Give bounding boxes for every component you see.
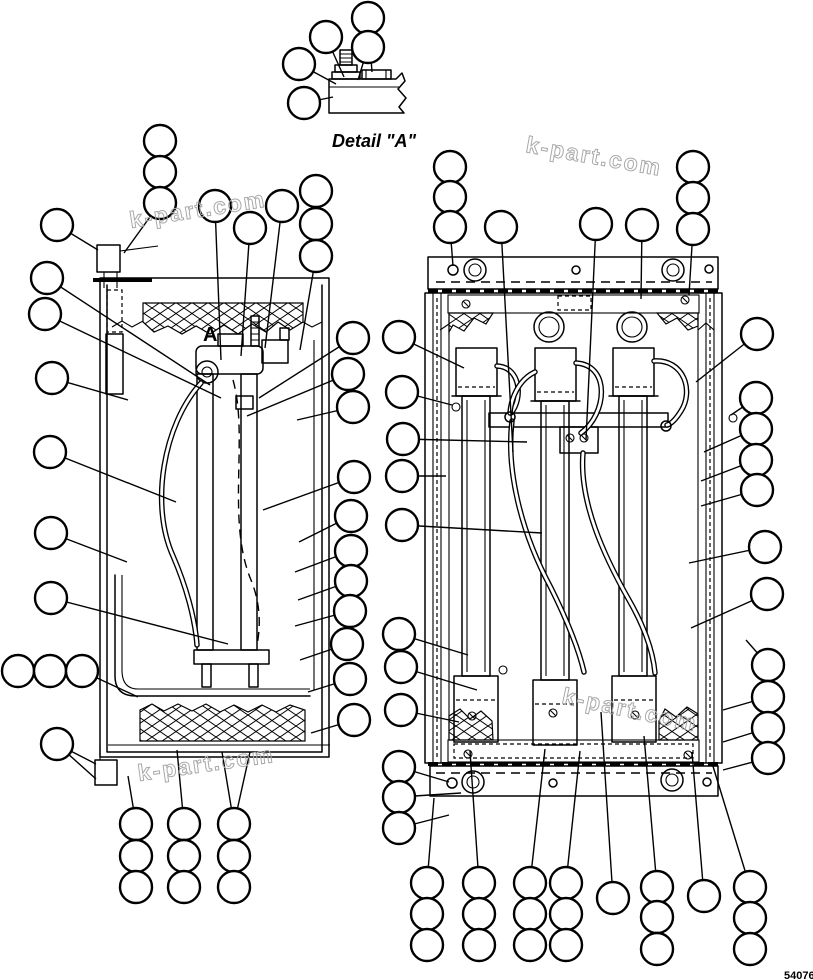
callout-balloon: [168, 840, 200, 872]
callout-balloon: [283, 48, 315, 80]
callout-balloon: [2, 655, 34, 687]
callout-balloon: [734, 933, 766, 965]
callout-balloon: [688, 880, 720, 912]
callout-balloon: [288, 87, 320, 119]
callout-balloon: [463, 867, 495, 899]
callout-balloon: [310, 21, 342, 53]
callout-balloon: [740, 382, 772, 414]
watermark-text: k-part.com: [524, 131, 664, 180]
callout-balloon: [751, 578, 783, 610]
watermark-text: k-part.com: [560, 682, 700, 736]
callout-balloon: [352, 31, 384, 63]
callout-balloon: [120, 840, 152, 872]
callout-balloon: [386, 376, 418, 408]
callout-balloon: [144, 125, 176, 157]
callout-balloon: [35, 582, 67, 614]
callout-balloon: [626, 209, 658, 241]
callout-balloon: [514, 898, 546, 930]
callout-balloon: [300, 208, 332, 240]
callout-balloon: [514, 867, 546, 899]
callout-balloon: [597, 882, 629, 914]
callout-leader: [530, 749, 545, 883]
callout-leader: [241, 228, 250, 356]
callout-balloon: [752, 742, 784, 774]
callout-balloon: [741, 474, 773, 506]
callout-balloon: [352, 2, 384, 34]
detail-a-label: Detail "A": [332, 131, 417, 151]
callout-balloon: [385, 651, 417, 683]
callout-balloon: [383, 321, 415, 353]
callout-balloon: [734, 871, 766, 903]
callout-balloon: [411, 867, 443, 899]
callout-balloon: [332, 358, 364, 390]
callout-balloon: [335, 535, 367, 567]
callout-balloon: [740, 444, 772, 476]
section-a-marker: A: [203, 324, 217, 346]
callout-balloon: [335, 500, 367, 532]
top-insulation-hatch: [143, 303, 303, 334]
callout-balloon: [550, 867, 582, 899]
callout-balloon: [752, 681, 784, 713]
callout-balloon: [29, 298, 61, 330]
callout-balloon: [300, 175, 332, 207]
callout-balloon: [218, 808, 250, 840]
callout-balloon: [387, 423, 419, 455]
return-hose-hidden: [233, 380, 259, 645]
callout-balloon: [434, 181, 466, 213]
callout-balloon: [752, 712, 784, 744]
callout-leader: [712, 763, 750, 887]
figure-number: 54076: [784, 970, 813, 980]
callout-balloon: [266, 190, 298, 222]
callout-balloon: [411, 929, 443, 961]
callout-balloon: [31, 262, 63, 294]
callout-balloon: [641, 933, 673, 965]
parts-diagram-page: k-part.comk-part.comk-part.comk-part.com…: [0, 0, 813, 980]
callout-balloon: [338, 461, 370, 493]
callout-balloon: [550, 929, 582, 961]
callout-balloon: [752, 649, 784, 681]
callout-balloon: [331, 628, 363, 660]
callout-balloon: [463, 929, 495, 961]
callout-balloon: [463, 898, 495, 930]
callout-balloon: [234, 212, 266, 244]
callout-balloon: [36, 362, 68, 394]
callout-balloon: [120, 871, 152, 903]
callout-balloon: [383, 618, 415, 650]
callout-balloon: [740, 413, 772, 445]
callout-balloon: [580, 208, 612, 240]
callout-balloon: [41, 209, 73, 241]
callout-balloon: [334, 595, 366, 627]
drain-fitting: [95, 760, 117, 785]
breather-box: [97, 245, 120, 272]
tube-fitting: [236, 396, 253, 409]
callout-balloon: [338, 704, 370, 736]
callout-leader: [265, 206, 282, 348]
callout-balloon: [677, 213, 709, 245]
callout-leader: [644, 736, 657, 887]
callout-balloon: [485, 211, 517, 243]
callout-leader: [51, 598, 228, 644]
callout-balloon: [386, 460, 418, 492]
callout-balloon: [335, 565, 367, 597]
callout-balloon: [383, 751, 415, 783]
callout-leader: [566, 751, 580, 883]
callout-balloon: [218, 840, 250, 872]
bottom-insulation-hatch: [140, 704, 305, 741]
callout-leader: [402, 525, 542, 533]
parts-diagram: k-part.comk-part.comk-part.comk-part.com…: [0, 0, 813, 980]
callout-balloon: [66, 655, 98, 687]
callout-balloon: [385, 694, 417, 726]
watermark-text: k-part.com: [136, 741, 276, 786]
callout-balloon: [168, 871, 200, 903]
callout-balloon: [383, 781, 415, 813]
callout-leader: [50, 452, 176, 502]
callout-balloon: [41, 728, 73, 760]
callout-balloon: [434, 151, 466, 183]
callout-balloon: [677, 182, 709, 214]
callout-balloon: [641, 901, 673, 933]
callout-balloon: [641, 871, 673, 903]
callout-balloon: [34, 436, 66, 468]
callout-balloon: [677, 151, 709, 183]
callout-balloon: [144, 156, 176, 188]
callout-balloon: [749, 531, 781, 563]
callout-balloon: [35, 517, 67, 549]
callout-balloon: [741, 318, 773, 350]
callout-balloon: [434, 211, 466, 243]
callout-balloon: [218, 871, 250, 903]
callout-balloon: [168, 808, 200, 840]
callout-balloon: [383, 812, 415, 844]
callout-balloon: [386, 509, 418, 541]
callout-balloon: [34, 655, 66, 687]
callout-balloon: [337, 322, 369, 354]
callout-balloon: [734, 902, 766, 934]
callout-balloon: [337, 391, 369, 423]
callout-balloon: [334, 663, 366, 695]
callout-balloon: [300, 240, 332, 272]
callout-balloon: [120, 808, 152, 840]
callout-balloon: [514, 929, 546, 961]
callout-leader: [501, 227, 513, 452]
callout-balloon: [411, 898, 443, 930]
callout-balloon: [550, 898, 582, 930]
